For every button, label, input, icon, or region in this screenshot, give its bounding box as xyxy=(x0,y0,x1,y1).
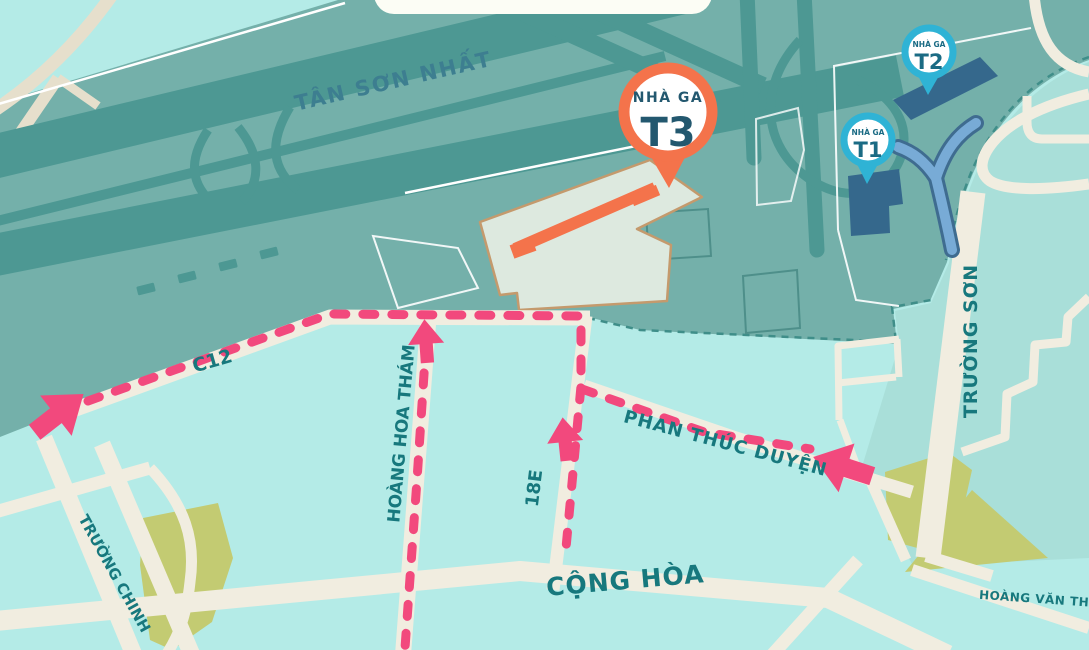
pin-kicker: NHÀ GA xyxy=(633,89,703,106)
taxiway xyxy=(747,0,754,158)
airport-access-map: TÂN SƠN NHẤT C12 HOÀNG HOA THÁM 18E PHAN… xyxy=(0,0,1089,650)
pin-kicker: NHÀ GA xyxy=(852,128,885,137)
road-label-truong-son: TRƯỜNG SƠN xyxy=(958,264,982,418)
top-banner xyxy=(374,0,712,14)
pin-code: T2 xyxy=(915,50,944,74)
pin-code: T3 xyxy=(640,110,695,156)
pin-code: T1 xyxy=(854,138,883,162)
pin-kicker: NHÀ GA xyxy=(913,40,946,49)
